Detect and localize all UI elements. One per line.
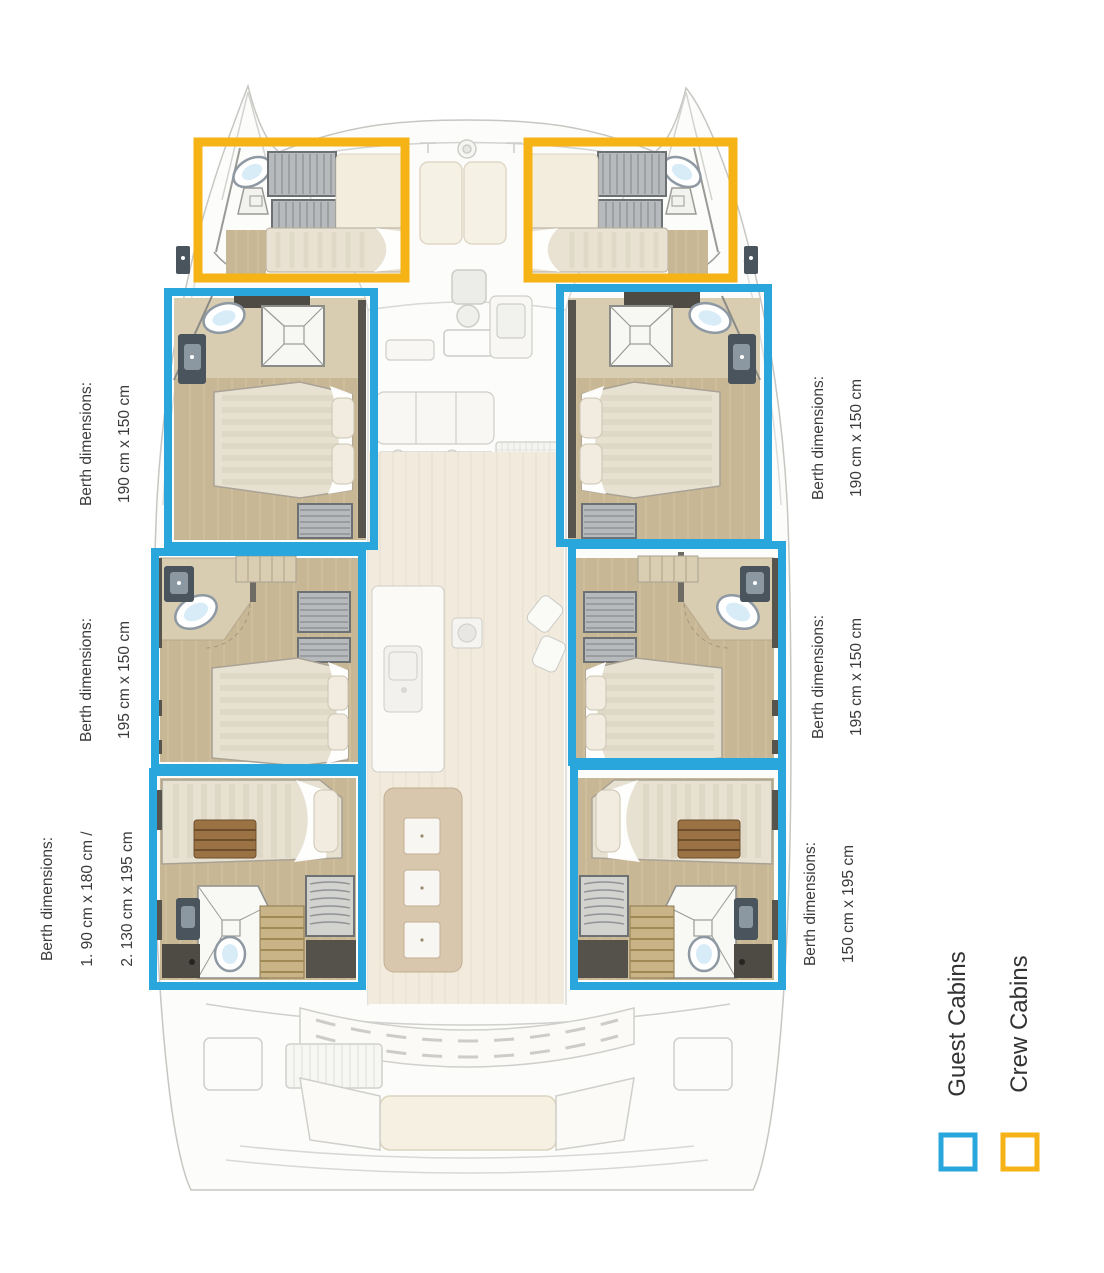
berth-label-value: 190 cm x 150 cm [117,385,133,503]
berth-label-right-forward: Berth dimensions: 190 cm x 150 cm [811,376,865,500]
berth-label-title: Berth dimensions: [811,376,827,500]
guest-cabin-mid-right [576,552,780,766]
guest-cabins-swatch [941,1135,975,1169]
berth-label-title: Berth dimensions: [40,837,56,961]
crew-cabins-swatch [1003,1135,1037,1169]
berth-label-value: 2. 130 cm x 195 cm [120,831,136,966]
foredeck-pad [420,162,462,244]
walkway-and-galley [368,452,567,1004]
berth-label-value: 1. 90 cm x 180 cm / [80,831,96,966]
legend-crew-label: Crew Cabins [1007,955,1033,1092]
berth-label-value: 195 cm x 150 cm [849,618,865,736]
mast-base [452,270,486,304]
berth-label-title: Berth dimensions: [803,842,819,966]
berth-label-value: 150 cm x 195 cm [841,845,857,963]
floor-plan [0,0,1104,1273]
aft-seat [380,1096,556,1150]
guest-cabin-aft-right [578,778,778,980]
saloon-seat [376,392,494,444]
berth-label-right-mid: Berth dimensions: 195 cm x 150 cm [811,615,865,739]
berth-label-title: Berth dimensions: [79,382,95,506]
berth-label-left-mid: Berth dimensions: 195 cm x 150 cm [79,618,133,742]
berth-label-title: Berth dimensions: [79,618,95,742]
foredeck-pad [464,162,506,244]
berth-label-value: 190 cm x 150 cm [849,379,865,497]
berth-label-left-aft: Berth dimensions: 1. 90 cm x 180 cm / 2.… [40,831,136,966]
guest-cabin-aft-left [156,778,356,980]
berth-label-value: 195 cm x 150 cm [117,621,133,739]
berth-label-left-forward: Berth dimensions: 190 cm x 150 cm [79,382,133,506]
berth-label-title: Berth dimensions: [811,615,827,739]
guest-cabin-forward-left [174,292,366,540]
legend-guest-label: Guest Cabins [945,951,971,1096]
berth-label-right-aft: Berth dimensions: 150 cm x 195 cm [803,842,857,966]
guest-cabin-mid-left [154,552,358,766]
yacht-layout-diagram: Berth dimensions: 190 cm x 150 cm Berth … [0,0,1104,1273]
guest-cabin-forward-right [568,292,760,540]
